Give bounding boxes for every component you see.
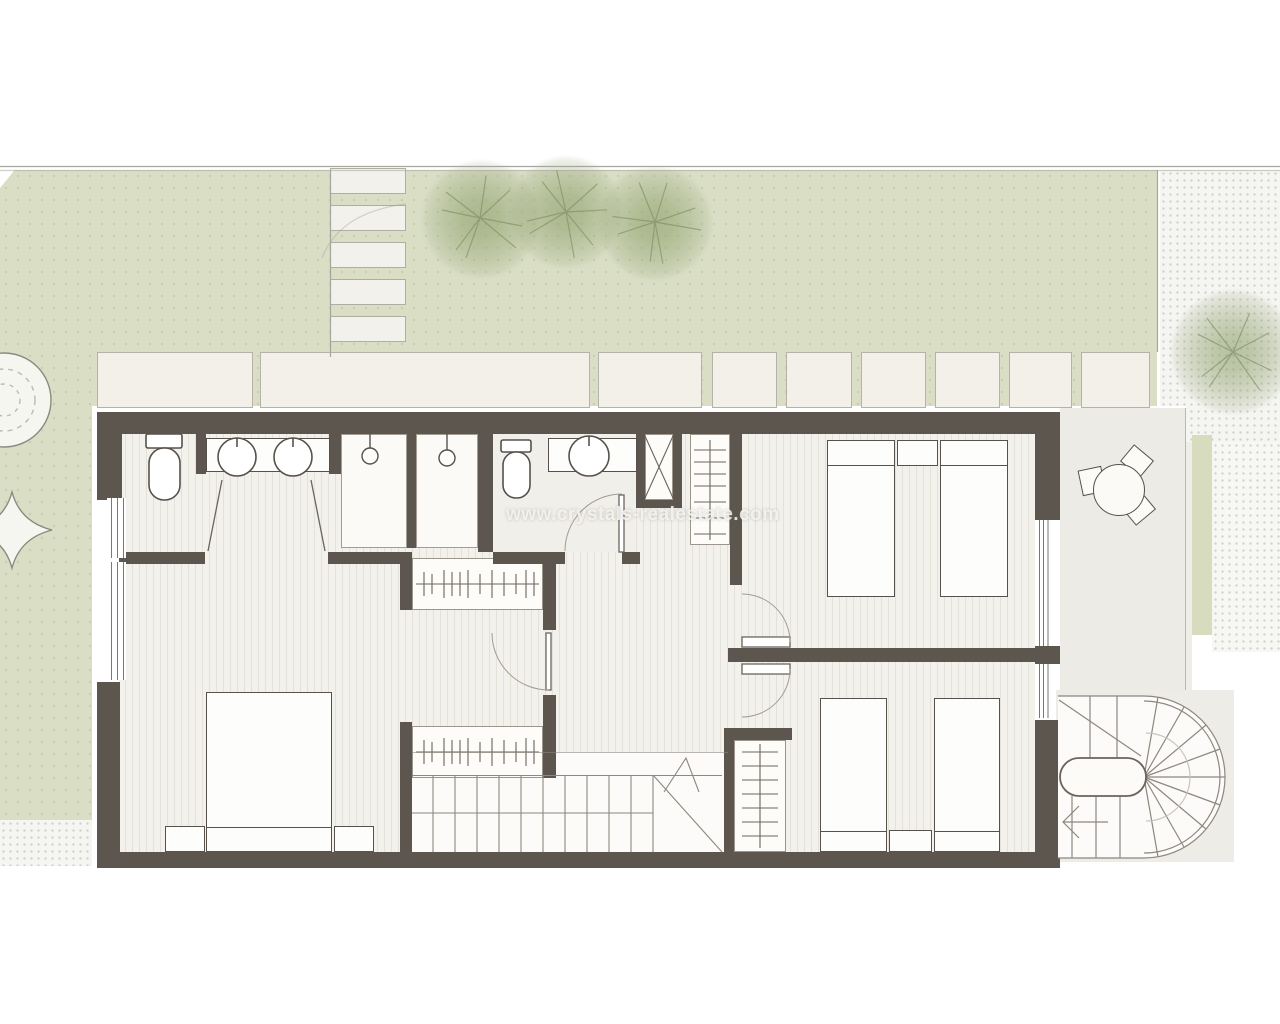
wall-north — [97, 412, 1060, 434]
wardrobe — [412, 726, 543, 778]
stepping-stone — [330, 205, 406, 231]
wall-east — [1035, 720, 1060, 854]
wall-wc-west — [478, 434, 493, 552]
wall-east — [1035, 412, 1060, 520]
stepping-stone — [330, 168, 406, 194]
paved-slab — [935, 352, 1000, 408]
gravel-right — [1212, 442, 1280, 652]
paved-slab — [260, 352, 590, 408]
tree — [598, 166, 712, 280]
gravel-strip-bottom-left — [0, 820, 92, 866]
nightstand — [165, 826, 205, 852]
paved-slab — [598, 352, 702, 408]
terrace — [1060, 408, 1186, 695]
wall-stub — [329, 434, 341, 474]
wall-east — [1035, 646, 1060, 664]
paved-slab — [712, 352, 777, 408]
vanity-counter — [548, 438, 637, 472]
wall-shaft — [636, 434, 645, 508]
stepping-stone — [330, 279, 406, 305]
nightstand — [334, 826, 374, 852]
wall-bedroom-divider — [728, 648, 1035, 662]
stepping-stone — [330, 242, 406, 268]
wall-shaft — [673, 434, 682, 508]
vanity-counter — [206, 438, 330, 472]
spiral-stair-ground — [1056, 690, 1234, 862]
paved-slab — [786, 352, 852, 408]
double-bed — [206, 692, 332, 852]
shower-tray — [416, 434, 478, 548]
wall-wardrobe — [543, 695, 556, 778]
wall-closet — [724, 728, 792, 740]
wall-closet — [724, 730, 734, 852]
linen-closet — [690, 434, 730, 545]
single-bed — [820, 698, 887, 852]
shower-tray — [341, 434, 407, 548]
stepping-stone — [330, 316, 406, 342]
wardrobe — [734, 740, 786, 852]
wall-west — [97, 682, 120, 854]
watermark: www.crystals-realestate.com — [506, 504, 780, 526]
utility-shaft — [645, 434, 673, 500]
wall-stub — [196, 434, 206, 474]
single-bed — [827, 440, 895, 597]
wall-bath-south — [622, 552, 640, 564]
hedge-strip-right — [1192, 435, 1212, 635]
paved-slab — [861, 352, 926, 408]
nightstand — [897, 440, 938, 466]
floor-plan: www.crystals-realestate.com — [0, 0, 1280, 1024]
wall-wardrobe — [543, 552, 556, 630]
wall-south — [97, 852, 1060, 868]
wardrobe — [412, 558, 543, 610]
single-bed — [934, 698, 1000, 852]
paved-slab — [1081, 352, 1150, 408]
wall-shower-divider — [407, 434, 416, 548]
wall-wardrobe — [400, 722, 412, 854]
garden-lawn-left — [0, 412, 92, 820]
paved-slab — [1009, 352, 1072, 408]
nightstand — [889, 830, 932, 852]
single-bed — [940, 440, 1008, 597]
wall-bath-south — [119, 552, 205, 564]
round-table — [1093, 464, 1145, 516]
paved-slab — [97, 352, 253, 408]
wall-west — [97, 412, 122, 500]
wall-wardrobe — [400, 552, 412, 610]
